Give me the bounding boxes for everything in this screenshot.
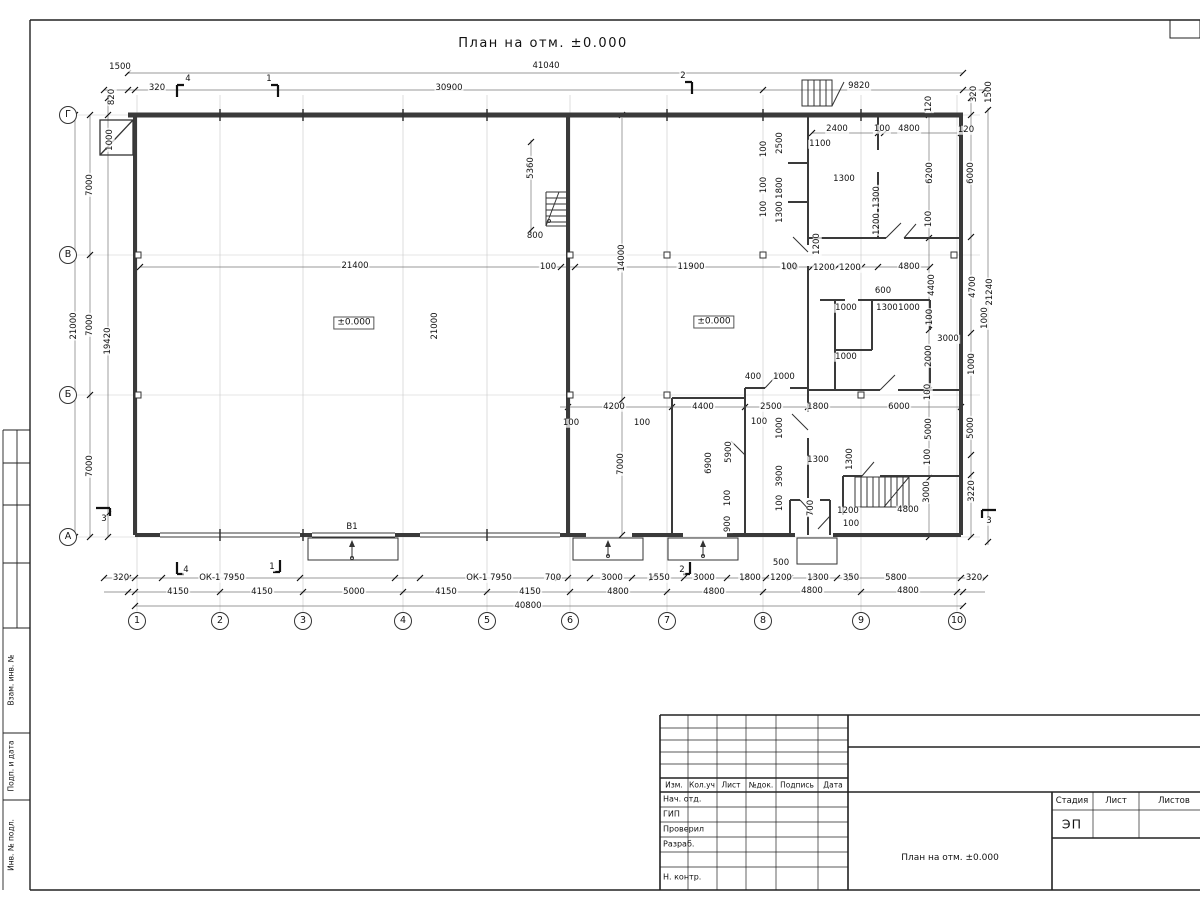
dimension-label: 4200 bbox=[602, 403, 626, 412]
dimension-label: 4800 bbox=[896, 506, 920, 515]
dimension-label: 5360 bbox=[527, 156, 536, 180]
dimension-label: 320 bbox=[970, 85, 979, 103]
dimension-label: 1000 bbox=[834, 353, 858, 362]
dimension-label: 3 bbox=[985, 517, 992, 526]
stair-bottom-right bbox=[855, 477, 909, 507]
dimension-label: 2 bbox=[678, 566, 685, 575]
elevation-mark: ±0.000 bbox=[693, 316, 734, 329]
axis-bubble: 10 bbox=[948, 612, 966, 630]
dimension-label: 3000 bbox=[600, 574, 624, 583]
dimension-label: 7000 bbox=[86, 313, 95, 337]
dimension-label: 1500 bbox=[108, 63, 132, 72]
axis-bubble: 4 bbox=[394, 612, 412, 630]
dimension-label: 7000 bbox=[617, 452, 626, 476]
dimension-label: 350 bbox=[842, 574, 860, 583]
porch-arrows bbox=[349, 540, 706, 547]
column-markers bbox=[135, 252, 957, 398]
dimension-label: 1800 bbox=[776, 176, 785, 200]
dimension-label: 1000 bbox=[834, 304, 858, 313]
dimension-label: 1200 bbox=[813, 232, 822, 256]
dimension-label: 2400 bbox=[825, 125, 849, 134]
dimension-label: 820 bbox=[108, 88, 117, 106]
dimension-label: 100 bbox=[924, 448, 933, 466]
dimension-label: 4150 bbox=[166, 588, 190, 597]
stamp-header-cell: Дата bbox=[823, 781, 842, 790]
dimension-label: 100 bbox=[724, 489, 733, 507]
dimension-label: 500 bbox=[772, 559, 790, 568]
dimension-label: 1000 bbox=[776, 416, 785, 440]
elevation-mark: ±0.000 bbox=[333, 317, 374, 330]
axis-bubble: 1 bbox=[128, 612, 146, 630]
dimension-label: 7000 bbox=[86, 173, 95, 197]
dimension-label: 4 bbox=[182, 566, 189, 575]
dimension-label: 21000 bbox=[431, 311, 440, 340]
dimension-label: 19420 bbox=[104, 326, 113, 355]
dimension-label: 1550 bbox=[647, 574, 671, 583]
dimension-label: 21240 bbox=[986, 277, 995, 306]
dimension-label: 1200 bbox=[812, 264, 836, 273]
axis-bubble: 2 bbox=[211, 612, 229, 630]
stamp-row-label: ГИП bbox=[663, 810, 680, 819]
dimension-label: 5000 bbox=[925, 417, 934, 441]
dimension-label: 1100 bbox=[808, 140, 832, 149]
dimension-label: 1300 bbox=[832, 175, 856, 184]
dimension-label: 400 bbox=[744, 373, 762, 382]
dimension-label: В1 bbox=[345, 523, 358, 532]
stamp-header-cell: Подпись bbox=[780, 781, 814, 790]
dimension-label: 6900 bbox=[705, 451, 714, 475]
stamp-doc-title: План на отм. ±0.000 bbox=[901, 853, 999, 863]
stair-top-right bbox=[802, 80, 844, 106]
dimension-label: 1 bbox=[268, 563, 275, 572]
dimension-label: 1000 bbox=[772, 373, 796, 382]
entrance-porches bbox=[308, 538, 837, 564]
dimension-label: 4800 bbox=[896, 587, 920, 596]
dimension-label: 21000 bbox=[70, 311, 79, 340]
dimension-label: 1200 bbox=[873, 212, 882, 236]
dimension-label: 5900 bbox=[725, 440, 734, 464]
dimension-label: 6000 bbox=[967, 161, 976, 185]
dimension-label: 2 bbox=[679, 72, 686, 81]
dimension-label: 100 bbox=[760, 140, 769, 158]
dimension-label: 2500 bbox=[776, 131, 785, 155]
dimension-label: 3 bbox=[100, 515, 107, 524]
dimension-label: 1000 bbox=[981, 306, 990, 330]
stamp-header-cell: Изм. bbox=[665, 781, 683, 790]
dimension-label: 100 bbox=[539, 263, 557, 272]
axis-bubble: А bbox=[59, 528, 77, 546]
dimension-label: 14000 bbox=[618, 243, 627, 272]
dimension-label: 600 bbox=[874, 287, 892, 296]
dimension-label: 3900 bbox=[776, 464, 785, 488]
axis-bubble: 3 bbox=[294, 612, 312, 630]
drawing-sheet: План на отм. ±0.000 41040150032030900982… bbox=[0, 0, 1200, 900]
dimension-label: 320 bbox=[965, 574, 983, 583]
axis-bubble: 6 bbox=[561, 612, 579, 630]
dimension-label: 1300 bbox=[776, 200, 785, 224]
dimension-label: 4800 bbox=[702, 588, 726, 597]
stamp-row-label: Разраб. bbox=[663, 840, 694, 849]
dimension-label: 3220 bbox=[968, 479, 977, 503]
dimension-label: 120 bbox=[957, 126, 975, 135]
axis-bubble: В bbox=[59, 246, 77, 264]
dimension-label: 11900 bbox=[676, 263, 705, 272]
stamp-row-label: Нач. отд. bbox=[663, 795, 701, 804]
dimension-label: 4800 bbox=[800, 587, 824, 596]
stamp-stage-value: ЭП bbox=[1062, 817, 1082, 832]
stamp-header-cell: Лист bbox=[721, 781, 740, 790]
stamp-stage-label: Стадия bbox=[1056, 796, 1089, 806]
dimension-label: 1300 bbox=[875, 304, 899, 313]
dimension-label: 1200 bbox=[769, 574, 793, 583]
dimension-label: ОК-1 7950 bbox=[198, 574, 246, 583]
dimension-label: 100 bbox=[750, 418, 768, 427]
dimension-label: 320 bbox=[112, 574, 130, 583]
dimension-label: 100 bbox=[760, 200, 769, 218]
dimension-label: 100 bbox=[926, 308, 935, 326]
dimension-label: 100 bbox=[924, 383, 933, 401]
axis-bubble: Г bbox=[59, 106, 77, 124]
dimension-label: 320 bbox=[148, 84, 166, 93]
stair-middle bbox=[546, 192, 566, 226]
dimension-label: 100 bbox=[760, 176, 769, 194]
dimension-label: 700 bbox=[544, 574, 562, 583]
dimension-label: 1300 bbox=[873, 185, 882, 209]
dimension-label: 4400 bbox=[928, 273, 937, 297]
floor-plan-drawing bbox=[0, 0, 1200, 900]
dimension-label: 4150 bbox=[434, 588, 458, 597]
stamp-header-cell: Кол.уч bbox=[689, 781, 715, 790]
dimension-label: 100 bbox=[925, 210, 934, 228]
stamp-row-label: Н. контр. bbox=[663, 873, 701, 882]
dimension-label: 1300 bbox=[806, 574, 830, 583]
drawing-title: План на отм. ±0.000 bbox=[458, 36, 628, 51]
dimension-label: 4 bbox=[184, 75, 191, 84]
dimension-label: 4800 bbox=[606, 588, 630, 597]
dimension-label: 3000 bbox=[936, 335, 960, 344]
dimension-label: 5000 bbox=[342, 588, 366, 597]
dimension-label: 100 bbox=[873, 125, 891, 134]
dimension-label: 800 bbox=[526, 232, 544, 241]
dimension-label: 1300 bbox=[806, 456, 830, 465]
dimension-label: 1300 bbox=[846, 447, 855, 471]
dimension-label: 3000 bbox=[923, 480, 932, 504]
dimension-label: 120 bbox=[925, 95, 934, 113]
dimension-label: 1000 bbox=[897, 304, 921, 313]
dimension-label: ОК-1 7950 bbox=[465, 574, 513, 583]
axis-bubble: Б bbox=[59, 386, 77, 404]
dimension-label: 9820 bbox=[847, 82, 871, 91]
dimension-label: 5000 bbox=[967, 416, 976, 440]
axis-bubble: 5 bbox=[478, 612, 496, 630]
dimension-label: 4700 bbox=[969, 275, 978, 299]
stamp-row-label: Проверил bbox=[663, 825, 704, 834]
axis-bubble: 9 bbox=[852, 612, 870, 630]
dimension-label: 100 bbox=[562, 419, 580, 428]
dimension-label: 700 bbox=[807, 499, 816, 517]
frame-corner-box bbox=[1170, 20, 1200, 38]
dimension-label: 2000 bbox=[925, 344, 934, 368]
dimension-label: 6200 bbox=[926, 161, 935, 185]
dimension-label: 21400 bbox=[340, 262, 369, 271]
dimension-label: 41040 bbox=[531, 62, 560, 71]
dimension-label: 5800 bbox=[884, 574, 908, 583]
dimension-label: 40800 bbox=[513, 602, 542, 611]
dimension-label: 1800 bbox=[738, 574, 762, 583]
dimension-label: 1500 bbox=[985, 80, 994, 104]
dimension-label: 100 bbox=[780, 263, 798, 272]
dimension-label: 1000 bbox=[106, 128, 115, 152]
stamp-header-cell: №док. bbox=[749, 781, 774, 790]
dimension-label: 4800 bbox=[897, 125, 921, 134]
dimension-label: 4400 bbox=[691, 403, 715, 412]
dimension-label: 7000 bbox=[86, 454, 95, 478]
dimension-label: 1 bbox=[265, 75, 272, 84]
dimension-label: 1200 bbox=[838, 264, 862, 273]
dimension-label: 100 bbox=[633, 419, 651, 428]
dimension-label: 1200 bbox=[836, 507, 860, 516]
dimension-label: 3000 bbox=[692, 574, 716, 583]
wall-column-ticks bbox=[220, 109, 861, 541]
stamp-sheets-label: Листов bbox=[1158, 796, 1190, 806]
dimension-label: 4800 bbox=[897, 263, 921, 272]
dimension-label: 2500 bbox=[759, 403, 783, 412]
dimension-label: 4150 bbox=[518, 588, 542, 597]
dimension-label: 6000 bbox=[887, 403, 911, 412]
dimension-label: 30900 bbox=[434, 84, 463, 93]
axis-bubble: 7 bbox=[658, 612, 676, 630]
dimension-label: 100 bbox=[776, 494, 785, 512]
dimension-label: 1800 bbox=[806, 403, 830, 412]
dimension-label: 1000 bbox=[968, 352, 977, 376]
side-strip-label: Инв. № подл. bbox=[7, 819, 16, 871]
dimension-label: 100 bbox=[842, 520, 860, 529]
side-strip-label: Взам. инв. № bbox=[7, 655, 16, 706]
axis-bubble: 8 bbox=[754, 612, 772, 630]
stamp-sheet-label: Лист bbox=[1105, 796, 1127, 806]
dimension-label: 4150 bbox=[250, 588, 274, 597]
dimension-label: 900 bbox=[724, 515, 733, 533]
side-strip-label: Подп. и дата bbox=[7, 740, 16, 791]
